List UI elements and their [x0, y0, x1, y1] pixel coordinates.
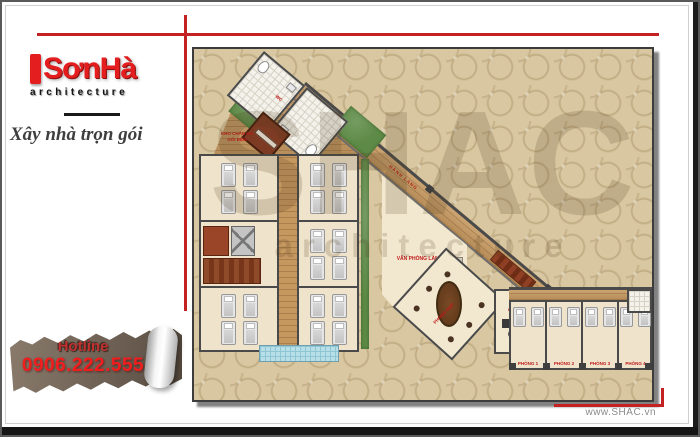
right-border — [693, 2, 698, 435]
floor-plan-image: HÀNH LANG WC KHO CHĂN GA GỐI ĐỆM — [192, 47, 654, 402]
bed-icon — [221, 163, 236, 187]
bed-icon — [332, 294, 347, 318]
bed-icon — [243, 190, 258, 214]
chair-icon — [465, 321, 473, 329]
chair-icon — [425, 285, 433, 293]
bottom-border — [2, 427, 698, 435]
red-accent-line-top — [37, 33, 659, 36]
hotline-label: Hotline — [58, 338, 109, 355]
escalator-icon — [490, 250, 537, 292]
small-bathroom — [627, 289, 652, 313]
brand-slogan: Xây nhà trọn gói — [10, 124, 190, 146]
bed-icon — [332, 229, 347, 253]
red-accent-line-vertical — [184, 15, 187, 311]
hotline-banner: Hotline 0906.222.555 — [10, 318, 182, 396]
bed-icon — [243, 163, 258, 187]
bed-icon — [221, 321, 236, 345]
plant-strip — [361, 159, 369, 349]
guest-room: PHÒNG 3 — [583, 302, 617, 368]
page: SơnHà architecture Xây nhà trọn gói Hotl… — [0, 0, 700, 437]
glass-canopy — [259, 345, 339, 362]
toilet-icon — [256, 59, 272, 75]
bed-icon — [585, 307, 598, 327]
logo-text: SơnHà — [43, 52, 136, 86]
treatment-room — [299, 222, 357, 286]
chair-icon — [443, 270, 451, 278]
column — [615, 363, 622, 370]
treatment-room-block — [199, 154, 359, 352]
storage-label: KHO CHĂN GA GỐI ĐỆM — [208, 131, 266, 142]
treatment-room — [299, 288, 357, 350]
bed-icon — [531, 307, 544, 327]
guest-room: PHÒNG 2 — [547, 302, 581, 368]
bed-icon — [310, 294, 325, 318]
column — [579, 363, 586, 370]
bed-group — [511, 307, 545, 327]
room-label: PHÒNG 3 — [583, 361, 617, 366]
bed-icon — [332, 256, 347, 280]
bed-icon — [310, 256, 325, 280]
bed-icon — [243, 321, 258, 345]
bed-icon — [332, 190, 347, 214]
bed-icon — [310, 163, 325, 187]
logo-mark-icon — [30, 54, 41, 84]
logo-subtitle: architecture — [30, 87, 170, 98]
bed-group — [583, 307, 617, 327]
chair-icon — [412, 304, 420, 312]
bed-icon — [513, 307, 526, 327]
chair-icon — [477, 301, 485, 309]
bed-icon — [310, 321, 325, 345]
bed-icon — [332, 163, 347, 187]
bed-icon — [567, 307, 580, 327]
bed-icon — [549, 307, 562, 327]
stair-landing — [203, 226, 229, 256]
bed-icon — [243, 294, 258, 318]
bed-group — [547, 307, 581, 327]
central-corridor — [279, 156, 299, 350]
room-label: PHÒNG 2 — [547, 361, 581, 366]
website-url: www.SHAC.vn — [560, 407, 656, 418]
treatment-room — [201, 156, 277, 220]
bed-icon — [221, 190, 236, 214]
bed-icon — [332, 321, 347, 345]
elevator-icon — [231, 226, 255, 256]
room-label: PHÒNG 1 — [511, 361, 545, 366]
column — [425, 184, 435, 194]
treatment-room — [299, 156, 357, 220]
hotline-number: 0906.222.555 — [22, 355, 144, 377]
bed-icon — [310, 229, 325, 253]
wall — [277, 156, 279, 350]
column — [509, 363, 516, 370]
column — [543, 363, 550, 370]
sink-icon — [286, 82, 297, 93]
guest-room: PHÒNG 1 — [511, 302, 545, 368]
brand-logo: SơnHà architecture — [30, 52, 170, 98]
wall — [201, 220, 277, 222]
chair-icon — [447, 335, 455, 343]
bed-icon — [603, 307, 616, 327]
red-accent-bracket-vertical — [661, 388, 664, 407]
bed-icon — [310, 190, 325, 214]
bed-icon — [221, 294, 236, 318]
treatment-room — [201, 288, 277, 350]
logo-row: SơnHà — [30, 52, 170, 86]
logo-divider — [64, 113, 120, 116]
column — [645, 363, 652, 370]
stairs-icon — [203, 258, 261, 284]
